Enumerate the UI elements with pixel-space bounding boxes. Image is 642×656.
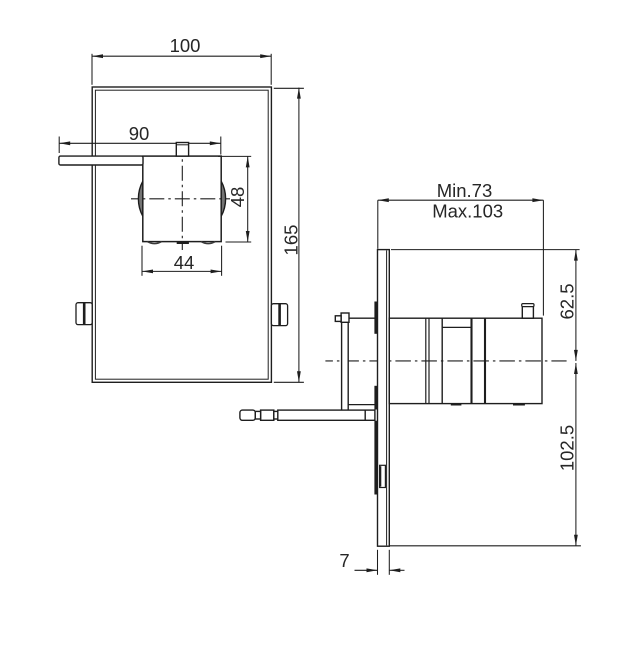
svg-text:48: 48 [227,187,248,208]
svg-text:44: 44 [174,252,195,273]
svg-text:7: 7 [339,550,349,571]
svg-text:Max.103: Max.103 [432,200,503,221]
svg-text:165: 165 [281,225,302,256]
svg-text:90: 90 [129,123,150,144]
svg-text:Min.73: Min.73 [437,180,493,201]
svg-text:102.5: 102.5 [557,425,578,471]
svg-text:100: 100 [170,35,201,56]
svg-text:62.5: 62.5 [557,283,578,319]
